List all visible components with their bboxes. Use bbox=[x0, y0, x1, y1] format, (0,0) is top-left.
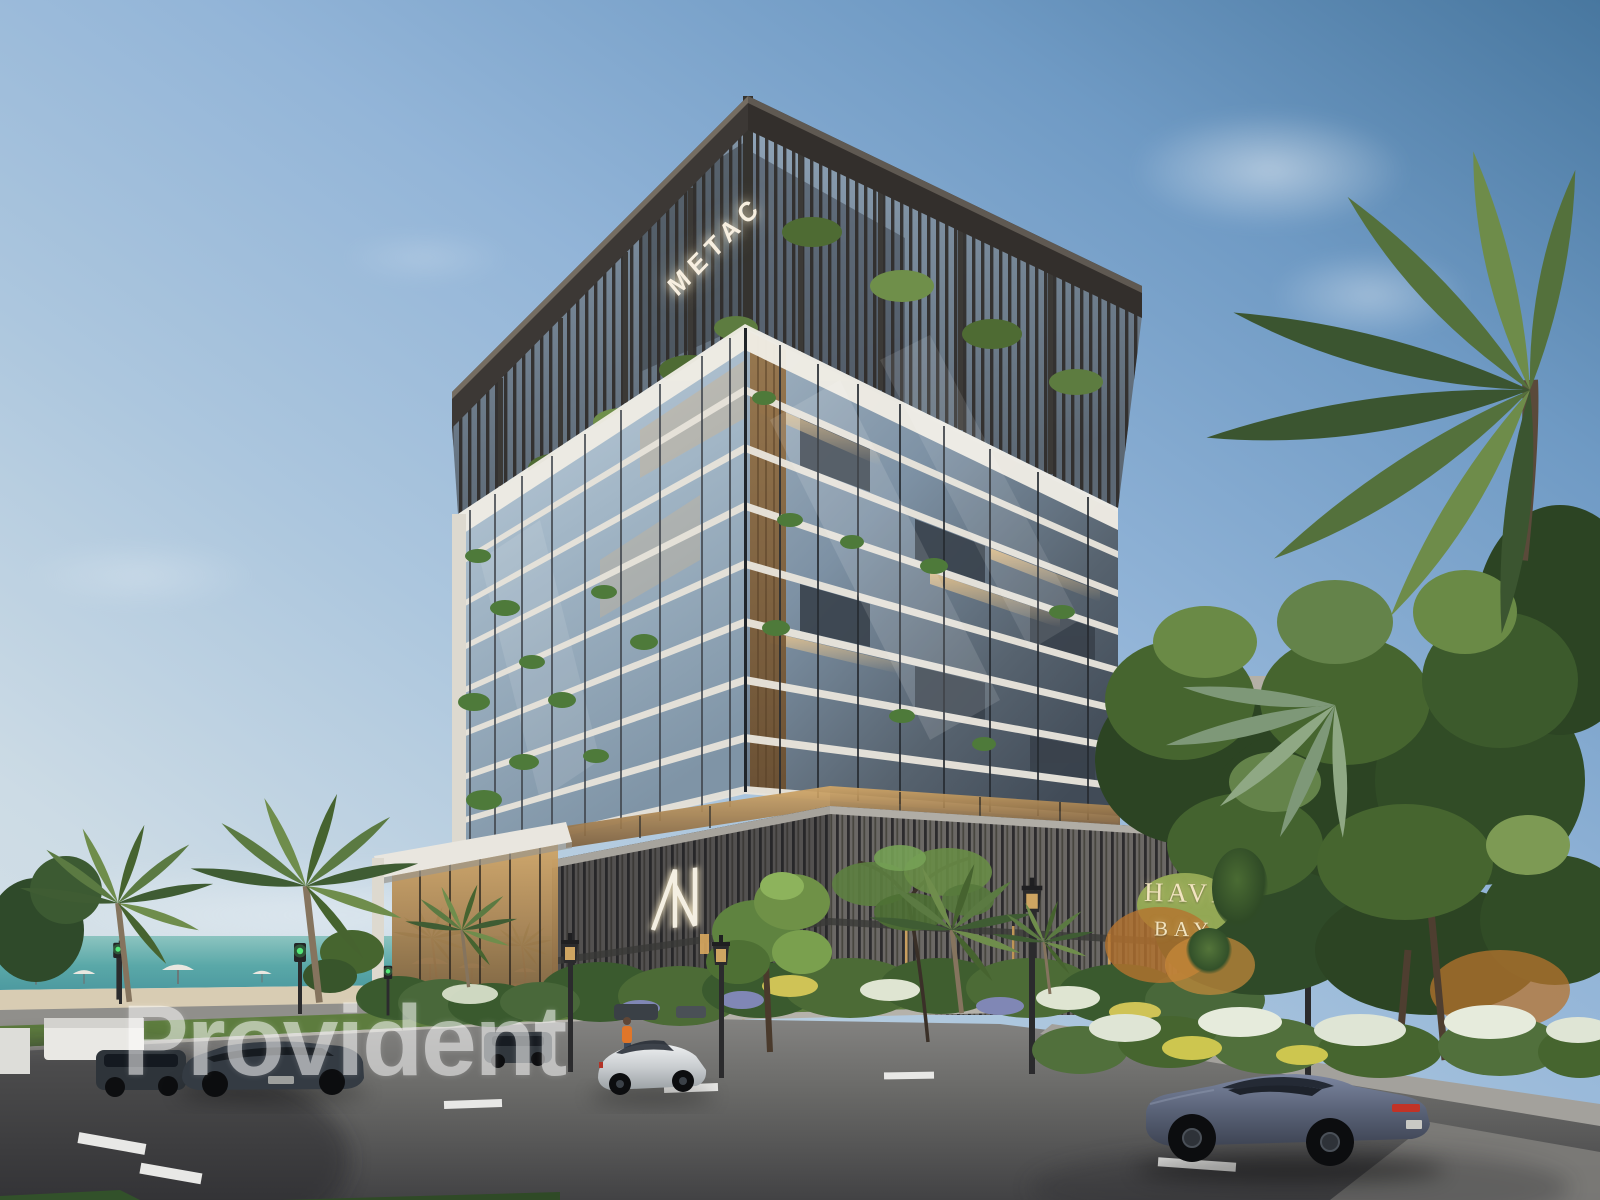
tower-corner-edge bbox=[744, 328, 747, 792]
architectural-render-scene: METAC HAVEN BAY Provident bbox=[0, 0, 1600, 1200]
taillight bbox=[1392, 1104, 1420, 1112]
wall-sconce bbox=[700, 934, 709, 954]
license-plate bbox=[1406, 1120, 1422, 1129]
leaf-overlay bbox=[1212, 848, 1268, 928]
corner-pilaster bbox=[452, 514, 466, 862]
tower bbox=[452, 96, 1142, 862]
provident-watermark: Provident bbox=[122, 984, 565, 1099]
tree-mass-right bbox=[1095, 505, 1600, 1060]
leaf-overlay bbox=[1186, 928, 1232, 974]
